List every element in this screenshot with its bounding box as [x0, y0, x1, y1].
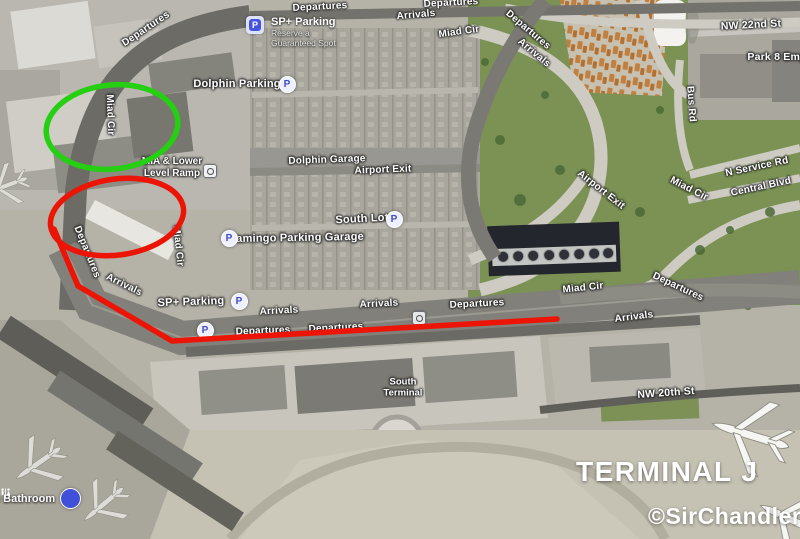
watermark-credit: ©SirChandler: [648, 503, 800, 530]
overlay-layer: TERMINAL J ©SirChandler: [0, 0, 800, 539]
terminal-j-label: TERMINAL J: [576, 456, 759, 488]
satellite-map[interactable]: P SP+ Parking Reserve a Guaranteed Spot …: [0, 0, 800, 539]
